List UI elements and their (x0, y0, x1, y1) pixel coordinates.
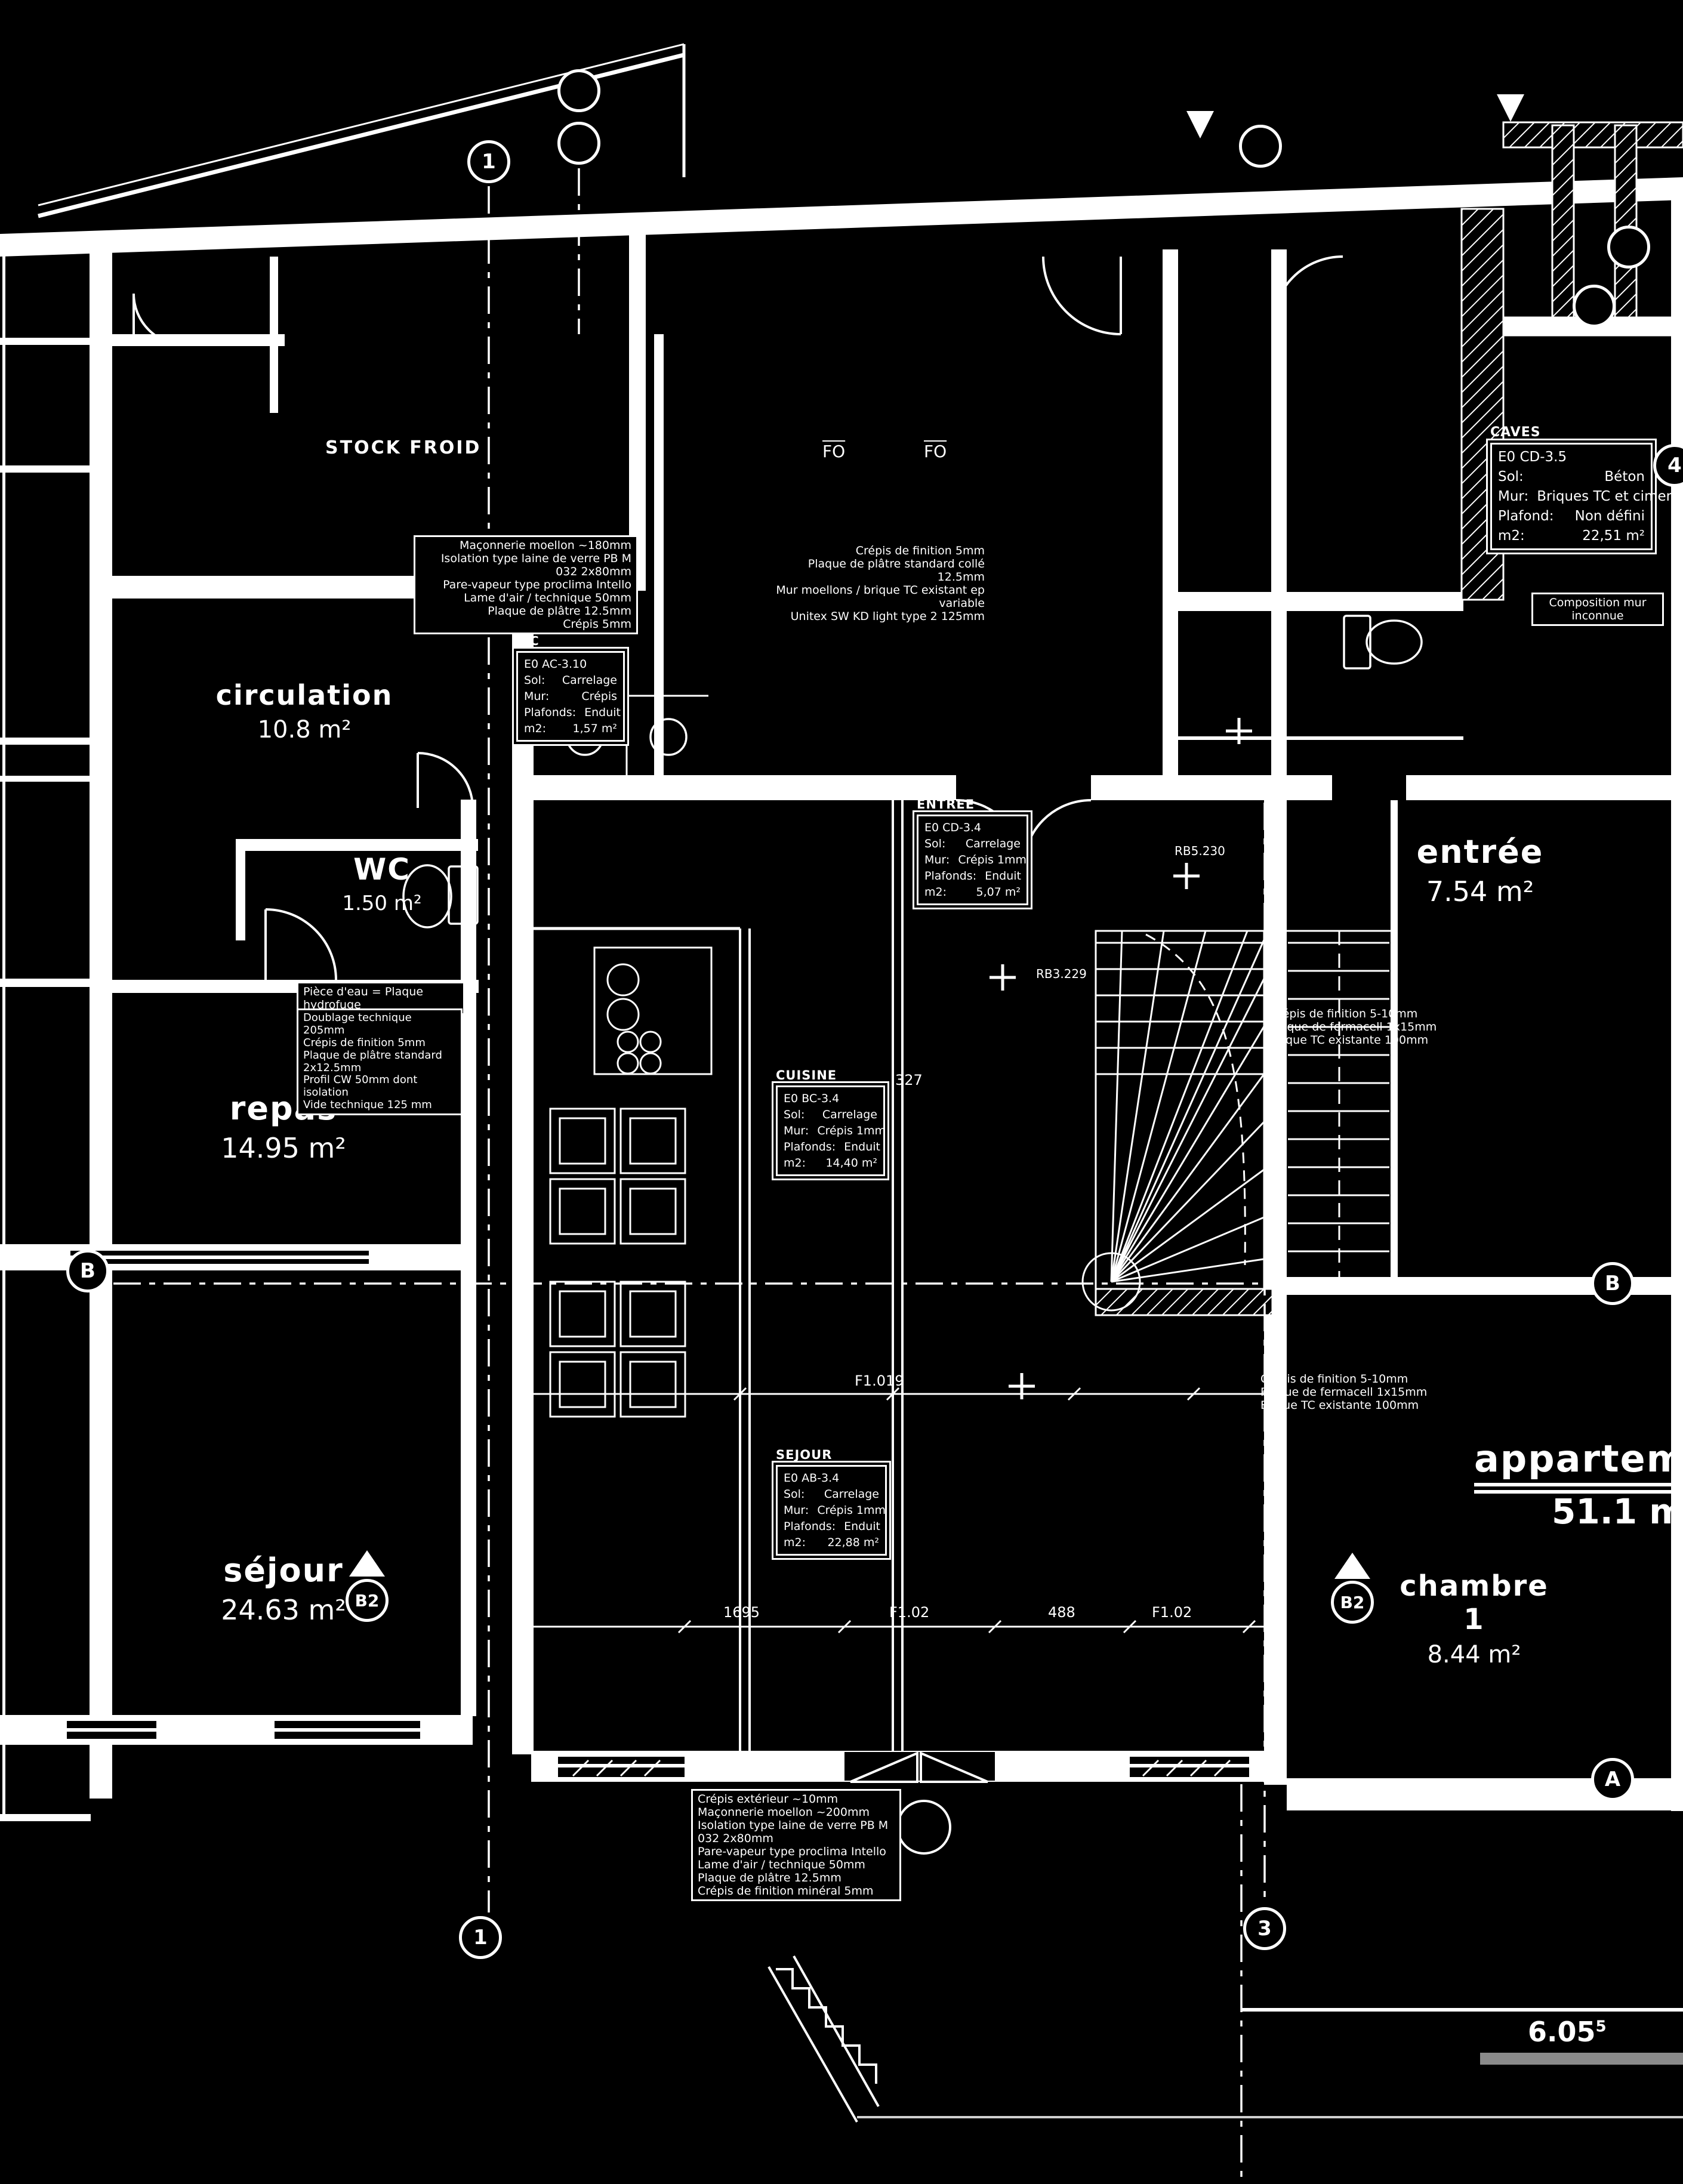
info-box-row: m2:22,88 m² (784, 1536, 879, 1549)
window-ref-f1019: F1.019 (855, 1372, 904, 1389)
info-box-row: Mur:Crépis 1mm (784, 1504, 879, 1517)
room-name: WC (322, 852, 442, 887)
room-label-sejour: séjour 24.63 m² (200, 1551, 367, 1626)
annotation-line: Isolation type laine de verre PB M 032 2… (698, 1819, 895, 1845)
grid-bubble-a-right: A (1591, 1758, 1634, 1801)
info-box-row: Plafonds:Enduit (524, 706, 617, 719)
annotation-line: Lame d'air / technique 50mm (420, 591, 631, 604)
info-box-cuisine: CUISINE E0 BC-3.4 Sol:Carrelage Mur:Crép… (776, 1068, 885, 1176)
info-box-row: m2:1,57 m² (524, 722, 617, 735)
annotation-line: Crépis de finition 5mm (303, 1037, 456, 1050)
info-box-row: Plafond:Non défini (1498, 508, 1645, 524)
ref-bubble-topright-1 (1607, 226, 1650, 269)
ref-bubble-topright-2 (1573, 285, 1616, 328)
info-box-row: Plafonds:Enduit (784, 1140, 877, 1153)
annotation-line: Profil CW 50mm dont isolation (303, 1074, 456, 1099)
annotation-wall-mid-top: Crépis de finition 5mm Plaque de plâtre … (776, 544, 985, 623)
room-name: STOCK FROID (325, 437, 481, 458)
info-box-title: CAVES (1490, 425, 1653, 440)
detail-circle (898, 1801, 950, 1853)
annotation-line: Crépis de finition 5-10mm (1260, 1372, 1428, 1386)
info-box-title: ENTREE (917, 797, 1028, 812)
vent-label-fo-2: FO (924, 442, 947, 461)
info-box-row: m2:5,07 m² (924, 886, 1021, 899)
info-box-row: Sol:Carrelage (784, 1108, 877, 1121)
info-box-row: Mur:Briques TC et ciment (1498, 489, 1645, 504)
room-name: séjour (200, 1551, 367, 1589)
room-area: 1.50 m² (322, 892, 442, 915)
kitchen-fixtures (550, 948, 711, 1417)
annotation-line: Unitex SW KD light type 2 125mm (776, 610, 985, 623)
annotation-line: Brique TC existante 100mm (1260, 1399, 1428, 1412)
annotation-line: Brique TC existante 100mm (1270, 1034, 1443, 1047)
annotation-line: Plaque de fermacell 1x15mm (1260, 1386, 1428, 1399)
dim-1695: 1695 (723, 1604, 760, 1621)
room-area: 8.44 m² (1385, 1641, 1564, 1668)
info-box-code: E0 CD-3.5 (1498, 449, 1645, 465)
grid-bubble-b-right: B (1591, 1262, 1634, 1305)
level-ref-rb3229: RB3.229 (1036, 967, 1087, 981)
annotation-line: Crépis extérieur ~10mm (698, 1793, 895, 1806)
annotation-line: Crépis de finition 5mm (776, 544, 985, 557)
section-marker-bottom (557, 122, 600, 165)
annotation-line: Plaque de plâtre 12.5mm (420, 604, 631, 618)
info-box-wc: WC E0 AC-3.10 Sol:Carrelage Mur:Crépis P… (516, 634, 625, 742)
info-box-row: Sol:Carrelage (524, 674, 617, 687)
info-box-code: E0 CD-3.4 (924, 821, 1021, 834)
annotation-line: Crépis de finition 5-10mm (1270, 1007, 1443, 1020)
room-label-wc: WC 1.50 m² (322, 852, 442, 915)
annotation-line: Pare-vapeur type proclima Intello (698, 1845, 895, 1858)
dim-327: 327 (895, 1072, 923, 1088)
annotation-wall-right-lower: Crépis de finition 5-10mm Plaque de ferm… (1260, 1372, 1428, 1412)
section-marker-top (557, 69, 600, 112)
room-area: 24.63 m² (200, 1594, 367, 1626)
annotation-line: Pare-vapeur type proclima Intello (420, 578, 631, 591)
room-label-stock-froid: STOCK FROID (325, 437, 481, 458)
info-box-entree: ENTREE E0 CD-3.4 Sol:Carrelage Mur:Crépi… (917, 797, 1028, 905)
annotation-wall-bottom: Crépis extérieur ~10mm Maçonnerie moello… (691, 1789, 901, 1901)
annotation-composition-inconnue: Composition mur inconnue (1531, 593, 1664, 626)
room-label-entree: entrée 7.54 m² (1385, 833, 1576, 908)
annotation-line: Maçonnerie moellon ~200mm (698, 1806, 895, 1819)
annotation-wall-right: Crépis de finition 5-10mm Plaque de ferm… (1270, 1007, 1443, 1047)
room-area: 7.54 m² (1385, 875, 1576, 908)
info-box-code: E0 BC-3.4 (784, 1092, 877, 1105)
room-name: chambre 1 (1385, 1569, 1564, 1636)
annotation-line: Isolation type laine de verre PB M 032 2… (420, 552, 631, 578)
annotation-line: Vide technique 125 mm (303, 1099, 456, 1112)
annotation-line: Doublage technique 205mm (303, 1012, 456, 1037)
info-box-title: WC (516, 634, 625, 648)
info-box-title: SEJOUR (776, 1448, 887, 1462)
window-marker-b2-chambre: B2 (1331, 1581, 1374, 1624)
info-box-row: m2:22,51 m² (1498, 528, 1645, 544)
info-box-row: Mur:Crépis (524, 690, 617, 703)
grid-bubble-1-bottom: 1 (459, 1916, 502, 1959)
room-label-circulation: circulation 10.8 m² (209, 679, 400, 744)
annotation-line: Crépis de finition minéral 5mm (698, 1884, 895, 1898)
room-name: appartement (1474, 1437, 1683, 1486)
grid-bubble-b-left: B (66, 1250, 109, 1292)
window-marker-b2-sejour: B2 (346, 1579, 389, 1622)
annotation-line: Plaque de plâtre standard collé 12.5mm (776, 557, 985, 584)
annotation-wall-left-top: Maçonnerie moellon ~180mm Isolation type… (414, 535, 638, 634)
room-name: circulation (209, 679, 400, 711)
room-area: 51.1 m² (1552, 1491, 1683, 1532)
window-ref-f102-a: F1.02 (889, 1604, 929, 1621)
roof-lines (0, 44, 1683, 257)
straight-stair (1288, 931, 1389, 1277)
room-label-chambre-1: chambre 1 8.44 m² (1385, 1569, 1564, 1668)
grid-bubble-3-bottom: 3 (1243, 1907, 1286, 1950)
dimension-lines (532, 1388, 1264, 1633)
vent-label-fo-1: FO (822, 442, 845, 461)
info-box-row: m2:14,40 m² (784, 1156, 877, 1170)
level-ref-rb5230: RB5.230 (1175, 844, 1225, 858)
info-box-code: E0 AB-3.4 (784, 1472, 879, 1485)
annotation-line: Plaque de fermacell 1x15mm (1270, 1020, 1443, 1034)
info-box-caves: CAVES E0 CD-3.5 Sol:Béton Mur:Briques TC… (1490, 425, 1653, 550)
room-area: 10.8 m² (209, 716, 400, 744)
info-box-row: Sol:Carrelage (784, 1488, 879, 1501)
room-name: entrée (1385, 833, 1576, 871)
info-box-sejour: SEJOUR E0 AB-3.4 Sol:Carrelage Mur:Crépi… (776, 1448, 887, 1556)
info-box-row: Plafonds:Enduit (924, 869, 1021, 883)
info-box-row: Plafonds:Enduit (784, 1520, 879, 1533)
info-box-row: Sol:Carrelage (924, 837, 1021, 850)
room-area: 14.95 m² (203, 1132, 364, 1164)
floor-plan: STOCK FROID circulation 10.8 m² WC 1.50 … (0, 0, 1683, 2184)
winder-stair (1083, 931, 1264, 1310)
annotation-doublage: Doublage technique 205mm Crépis de finit… (297, 1008, 463, 1115)
dim-488: 488 (1048, 1604, 1075, 1621)
grid-bubble-1-top: 1 (467, 140, 510, 183)
window-ref-f102-b: F1.02 (1152, 1604, 1192, 1621)
info-box-code: E0 AC-3.10 (524, 658, 617, 671)
doors (134, 257, 1343, 980)
info-box-row: Mur:Crépis 1mm (784, 1124, 877, 1137)
annotation-line: Plaque de plâtre 12.5mm (698, 1871, 895, 1884)
room-label-appartement: appartement 51.1 m² (1474, 1437, 1683, 1532)
annotation-line: Mur moellons / brique TC existant ep var… (776, 584, 985, 610)
ground-level-value: 6.055 (1528, 2016, 1607, 2048)
annotation-line: Maçonnerie moellon ~180mm (420, 539, 631, 552)
window-marker-circle-top (1239, 125, 1282, 168)
exterior-steps (769, 1956, 879, 2122)
info-box-title: CUISINE (776, 1068, 885, 1082)
annotation-line: Plaque de plâtre standard 2x12.5mm (303, 1050, 456, 1075)
info-box-row: Sol:Béton (1498, 469, 1645, 485)
annotation-line: Lame d'air / technique 50mm (698, 1858, 895, 1871)
info-box-row: Mur:Crépis 1mm (924, 853, 1021, 866)
annotation-line: Crépis 5mm (420, 618, 631, 631)
